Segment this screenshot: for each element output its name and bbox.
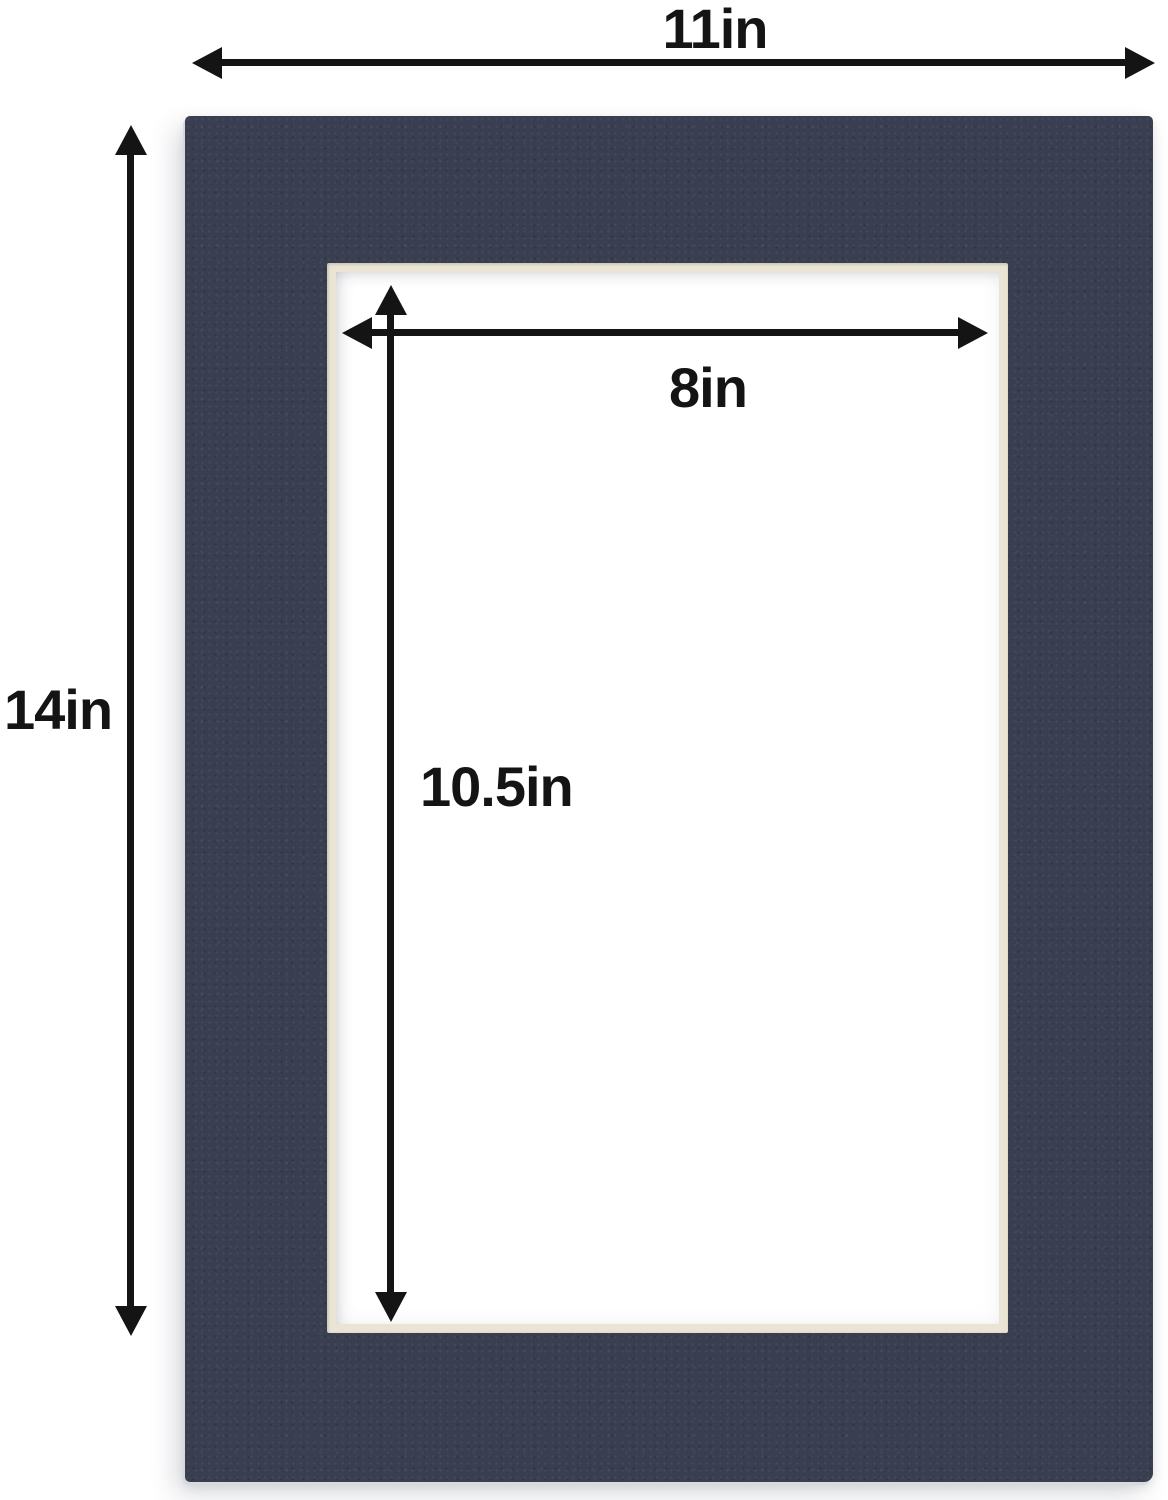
product-dimension-image: 11in 14in 8in 10.5in bbox=[0, 0, 1168, 1500]
outer-height-arrow-line bbox=[127, 149, 134, 1312]
opening-width-label: 8in bbox=[628, 360, 788, 416]
opening-width-arrow-line bbox=[366, 329, 964, 336]
opening-height-arrow-line bbox=[387, 309, 394, 1298]
outer-height-arrow-icon bbox=[115, 125, 147, 1336]
outer-width-label: 11in bbox=[595, 1, 835, 57]
opening-width-arrow-icon bbox=[342, 317, 988, 349]
outer-width-arrow-line bbox=[216, 59, 1131, 66]
opening-height-arrow-icon bbox=[375, 285, 407, 1322]
opening-height-label: 10.5in bbox=[420, 759, 573, 815]
outer-height-label: 14in bbox=[0, 682, 116, 738]
